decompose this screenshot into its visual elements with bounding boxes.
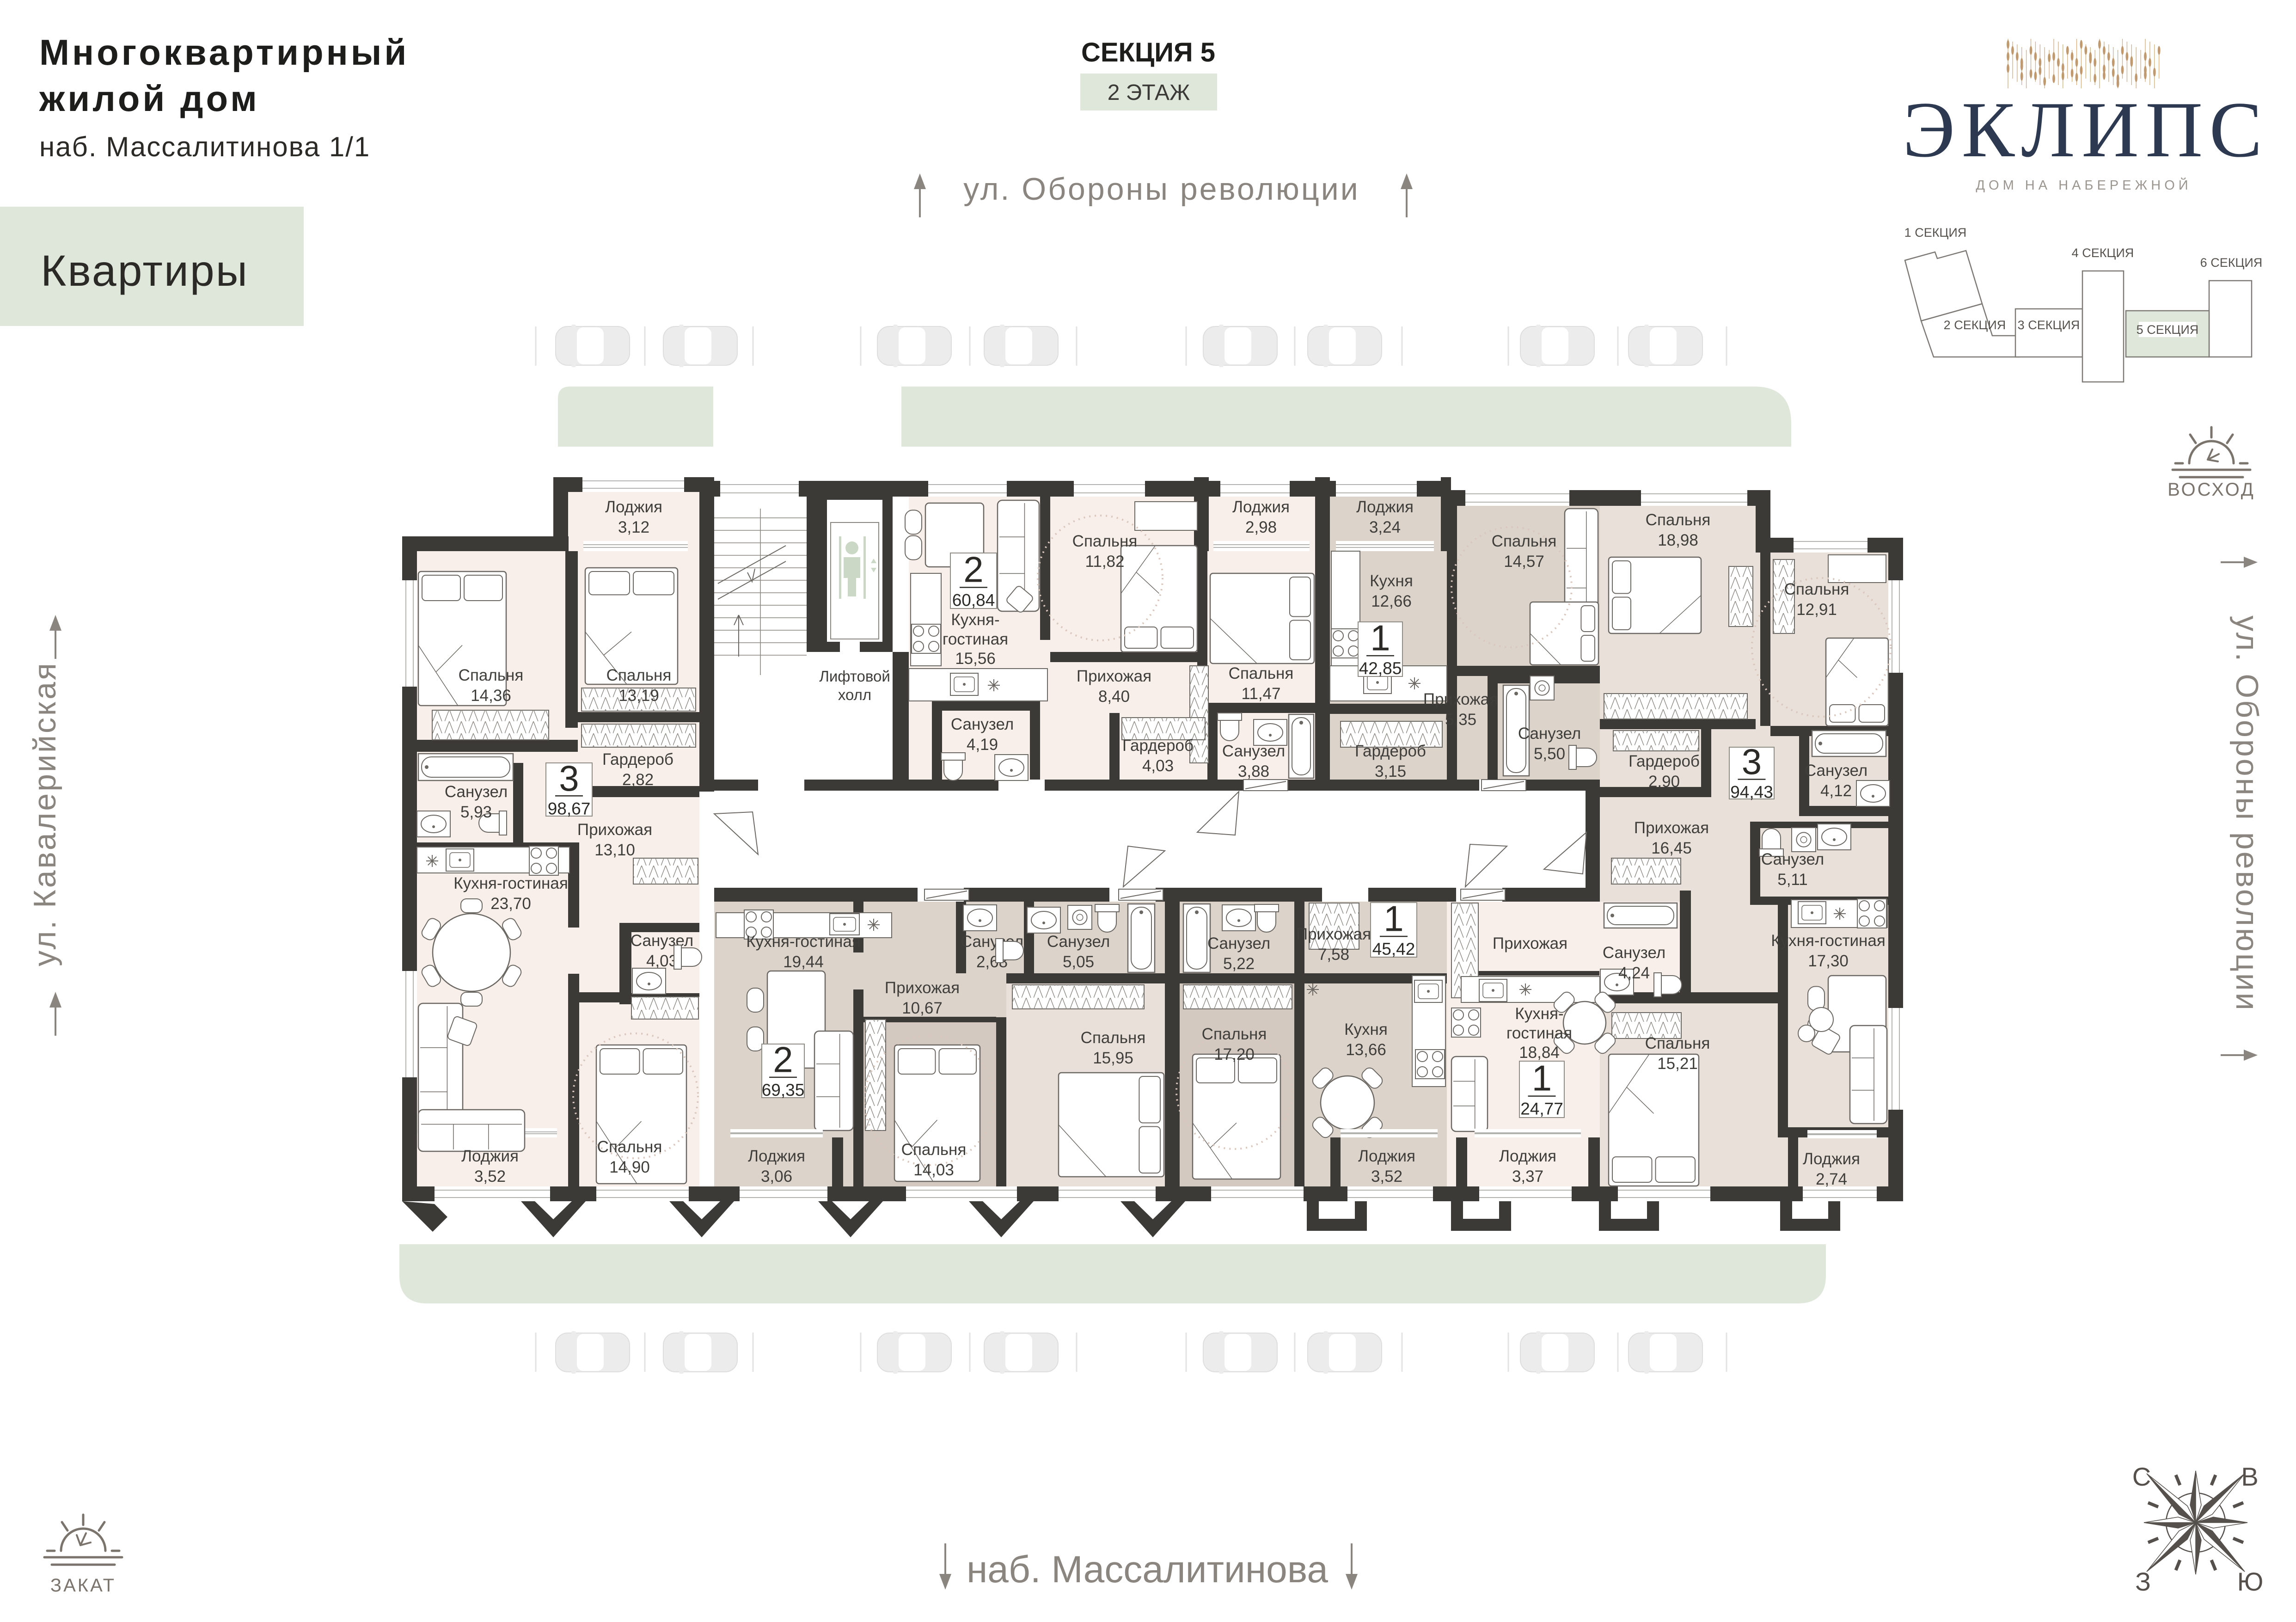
- svg-text:3,52: 3,52: [1371, 1167, 1402, 1186]
- svg-text:5 СЕКЦИЯ: 5 СЕКЦИЯ: [2137, 323, 2199, 337]
- svg-text:жилой дом: жилой дом: [39, 78, 260, 119]
- svg-text:3,12: 3,12: [618, 518, 649, 536]
- svg-text:14,57: 14,57: [1504, 553, 1544, 571]
- svg-text:4 СЕКЦИЯ: 4 СЕКЦИЯ: [2072, 246, 2134, 260]
- svg-text:3,88: 3,88: [1238, 762, 1269, 780]
- svg-text:Лоджия: Лоджия: [461, 1147, 519, 1165]
- svg-text:холл: холл: [838, 686, 871, 703]
- svg-text:3: 3: [559, 758, 579, 799]
- svg-text:Спальня: Спальня: [1081, 1029, 1146, 1047]
- svg-text:1: 1: [1532, 1057, 1552, 1098]
- svg-text:Спальня: Спальня: [459, 666, 524, 684]
- svg-text:Кухня: Кухня: [1344, 1020, 1388, 1038]
- svg-text:гостиная: гостиная: [1506, 1024, 1572, 1042]
- svg-text:Прихожая: Прихожая: [577, 821, 652, 839]
- svg-text:наб. Массалитинова 1/1: наб. Массалитинова 1/1: [39, 131, 370, 162]
- svg-text:Лоджия: Лоджия: [1499, 1147, 1556, 1165]
- svg-text:ул. Кавалерийская: ул. Кавалерийская: [27, 661, 62, 966]
- svg-text:1: 1: [1370, 617, 1390, 658]
- svg-text:ул. Обороны революции: ул. Обороны революции: [963, 172, 1360, 207]
- svg-text:11,47: 11,47: [1242, 685, 1281, 703]
- svg-text:14,03: 14,03: [913, 1161, 954, 1179]
- svg-text:Спальня: Спальня: [1646, 511, 1711, 529]
- svg-text:5,35: 5,35: [1445, 711, 1476, 729]
- svg-text:15,95: 15,95: [1093, 1049, 1133, 1067]
- svg-text:Санузел: Санузел: [1603, 944, 1665, 962]
- svg-text:4,12: 4,12: [1820, 782, 1852, 800]
- svg-text:4,03: 4,03: [1142, 757, 1174, 775]
- svg-text:3,06: 3,06: [761, 1167, 792, 1186]
- svg-text:13,10: 13,10: [594, 841, 635, 859]
- svg-text:3,24: 3,24: [1369, 518, 1401, 536]
- svg-text:2 СЕКЦИЯ: 2 СЕКЦИЯ: [1944, 318, 2006, 332]
- svg-text:3,37: 3,37: [1512, 1167, 1543, 1186]
- svg-text:Санузел: Санузел: [1047, 933, 1110, 951]
- svg-text:ул. Обороны революции: ул. Обороны революции: [2229, 615, 2265, 1012]
- svg-text:Прихожая: Прихожая: [1296, 925, 1371, 943]
- svg-text:24,77: 24,77: [1520, 1100, 1563, 1118]
- svg-text:Прихожая: Прихожая: [1493, 934, 1567, 952]
- svg-text:42,85: 42,85: [1359, 659, 1402, 678]
- svg-text:З: З: [2135, 1567, 2151, 1596]
- svg-text:2,90: 2,90: [1648, 773, 1680, 791]
- svg-text:Прихожая: Прихожая: [1423, 690, 1498, 708]
- svg-text:14,36: 14,36: [471, 687, 511, 705]
- svg-text:4,19: 4,19: [967, 736, 998, 754]
- svg-text:Лоджия: Лоджия: [1803, 1150, 1860, 1168]
- svg-text:Кухня-: Кухня-: [1515, 1005, 1563, 1023]
- svg-text:4,03: 4,03: [646, 952, 678, 970]
- svg-text:5,22: 5,22: [1223, 955, 1255, 973]
- svg-text:2: 2: [963, 549, 983, 590]
- svg-text:Кухня-гостиная: Кухня-гостиная: [1771, 932, 1886, 950]
- svg-text:ВОСХОД: ВОСХОД: [2167, 479, 2255, 500]
- svg-text:Санузел: Санузел: [631, 932, 693, 950]
- svg-text:13,19: 13,19: [618, 687, 659, 705]
- svg-text:18,98: 18,98: [1658, 531, 1698, 549]
- svg-text:Санузел: Санузел: [951, 715, 1014, 733]
- svg-text:Кухня-гостиная: Кухня-гостиная: [453, 874, 568, 892]
- svg-text:13,66: 13,66: [1346, 1041, 1386, 1059]
- svg-text:15,56: 15,56: [955, 650, 996, 668]
- svg-text:2,98: 2,98: [1245, 518, 1277, 536]
- svg-text:Спальня: Спальня: [1492, 532, 1557, 550]
- svg-text:17,30: 17,30: [1808, 952, 1849, 970]
- svg-text:1: 1: [1384, 898, 1403, 939]
- svg-text:4,24: 4,24: [1618, 964, 1650, 982]
- svg-text:Многоквартирный: Многоквартирный: [39, 32, 409, 73]
- svg-text:11,82: 11,82: [1085, 553, 1125, 571]
- svg-text:Санузел: Санузел: [445, 783, 508, 801]
- svg-text:Лоджия: Лоджия: [1232, 498, 1290, 516]
- svg-text:Спальня: Спальня: [1072, 532, 1138, 550]
- svg-text:2: 2: [773, 1039, 793, 1080]
- svg-text:Прихожая: Прихожая: [1634, 819, 1709, 837]
- svg-text:Санузел: Санузел: [1805, 762, 1867, 780]
- svg-text:2,82: 2,82: [622, 771, 654, 789]
- svg-text:Спальня: Спальня: [606, 666, 672, 684]
- svg-text:Гардероб: Гардероб: [602, 750, 673, 768]
- svg-text:наб. Массалитинова: наб. Массалитинова: [967, 1548, 1328, 1591]
- svg-text:3,52: 3,52: [474, 1167, 506, 1186]
- svg-text:Лоджия: Лоджия: [1358, 1147, 1415, 1165]
- svg-text:16,45: 16,45: [1651, 839, 1692, 857]
- svg-text:7,58: 7,58: [1318, 946, 1349, 964]
- svg-text:Санузел: Санузел: [1518, 725, 1581, 743]
- svg-text:10,67: 10,67: [902, 999, 943, 1017]
- svg-text:2,74: 2,74: [1816, 1170, 1847, 1188]
- svg-text:3 СЕКЦИЯ: 3 СЕКЦИЯ: [2018, 318, 2080, 332]
- svg-text:Спальня: Спальня: [901, 1141, 967, 1159]
- svg-text:ЗАКАТ: ЗАКАТ: [50, 1575, 116, 1596]
- svg-text:5,93: 5,93: [460, 803, 492, 821]
- svg-text:5,11: 5,11: [1777, 871, 1808, 889]
- svg-text:гостиная: гостиная: [943, 630, 1008, 648]
- svg-text:5,05: 5,05: [1063, 953, 1094, 971]
- svg-text:98,67: 98,67: [548, 799, 591, 818]
- svg-text:В: В: [2241, 1462, 2258, 1491]
- svg-text:Лоджия: Лоджия: [748, 1147, 805, 1165]
- svg-text:Санузел: Санузел: [1761, 850, 1824, 868]
- svg-text:Гардероб: Гардероб: [1122, 737, 1194, 755]
- svg-text:Кухня-: Кухня-: [951, 611, 999, 629]
- svg-text:8,40: 8,40: [1098, 688, 1130, 706]
- svg-text:Кухня-гостиная: Кухня-гостиная: [746, 933, 861, 951]
- svg-text:1 СЕКЦИЯ: 1 СЕКЦИЯ: [1904, 226, 1967, 240]
- svg-text:Санузел: Санузел: [1207, 934, 1270, 952]
- svg-text:94,43: 94,43: [1730, 782, 1773, 801]
- svg-text:Лоджия: Лоджия: [1356, 498, 1414, 516]
- svg-text:Лифтовой: Лифтовой: [819, 668, 890, 685]
- svg-text:Спальня: Спальня: [597, 1138, 662, 1156]
- svg-text:15,21: 15,21: [1657, 1055, 1698, 1073]
- svg-text:60,84: 60,84: [952, 590, 995, 609]
- svg-text:2 ЭТАЖ: 2 ЭТАЖ: [1108, 80, 1190, 105]
- svg-text:3,15: 3,15: [1375, 762, 1406, 780]
- svg-text:Спальня: Спальня: [1784, 580, 1849, 598]
- svg-text:Прихожая: Прихожая: [885, 979, 960, 997]
- svg-text:12,91: 12,91: [1796, 601, 1837, 619]
- svg-text:ДОМ НА НАБЕРЕЖНОЙ: ДОМ НА НАБЕРЕЖНОЙ: [1976, 177, 2192, 193]
- svg-text:Спальня: Спальня: [1229, 664, 1294, 682]
- svg-text:Гардероб: Гардероб: [1355, 742, 1426, 760]
- svg-text:ЭКЛИПС: ЭКЛИПС: [1903, 86, 2269, 174]
- svg-text:14,90: 14,90: [609, 1158, 650, 1176]
- svg-text:С: С: [2132, 1462, 2151, 1491]
- svg-text:Спальня: Спальня: [1645, 1034, 1710, 1052]
- svg-text:3: 3: [1742, 741, 1762, 782]
- svg-text:5,50: 5,50: [1534, 745, 1565, 763]
- svg-text:6 СЕКЦИЯ: 6 СЕКЦИЯ: [2200, 256, 2263, 270]
- svg-text:Квартиры: Квартиры: [41, 246, 249, 295]
- svg-text:Кухня: Кухня: [1370, 572, 1413, 590]
- svg-text:Лоджия: Лоджия: [605, 498, 662, 516]
- svg-text:45,42: 45,42: [1372, 940, 1415, 958]
- svg-text:69,35: 69,35: [762, 1081, 805, 1100]
- svg-text:СЕКЦИЯ 5: СЕКЦИЯ 5: [1081, 37, 1215, 68]
- svg-text:Прихожая: Прихожая: [1077, 667, 1151, 685]
- svg-text:Ю: Ю: [2237, 1567, 2264, 1596]
- svg-text:Гардероб: Гардероб: [1629, 752, 1700, 770]
- svg-text:Спальня: Спальня: [1202, 1025, 1267, 1043]
- svg-text:23,70: 23,70: [490, 895, 531, 913]
- svg-text:19,44: 19,44: [783, 953, 824, 971]
- svg-text:12,66: 12,66: [1371, 592, 1412, 610]
- svg-text:17,20: 17,20: [1214, 1045, 1255, 1063]
